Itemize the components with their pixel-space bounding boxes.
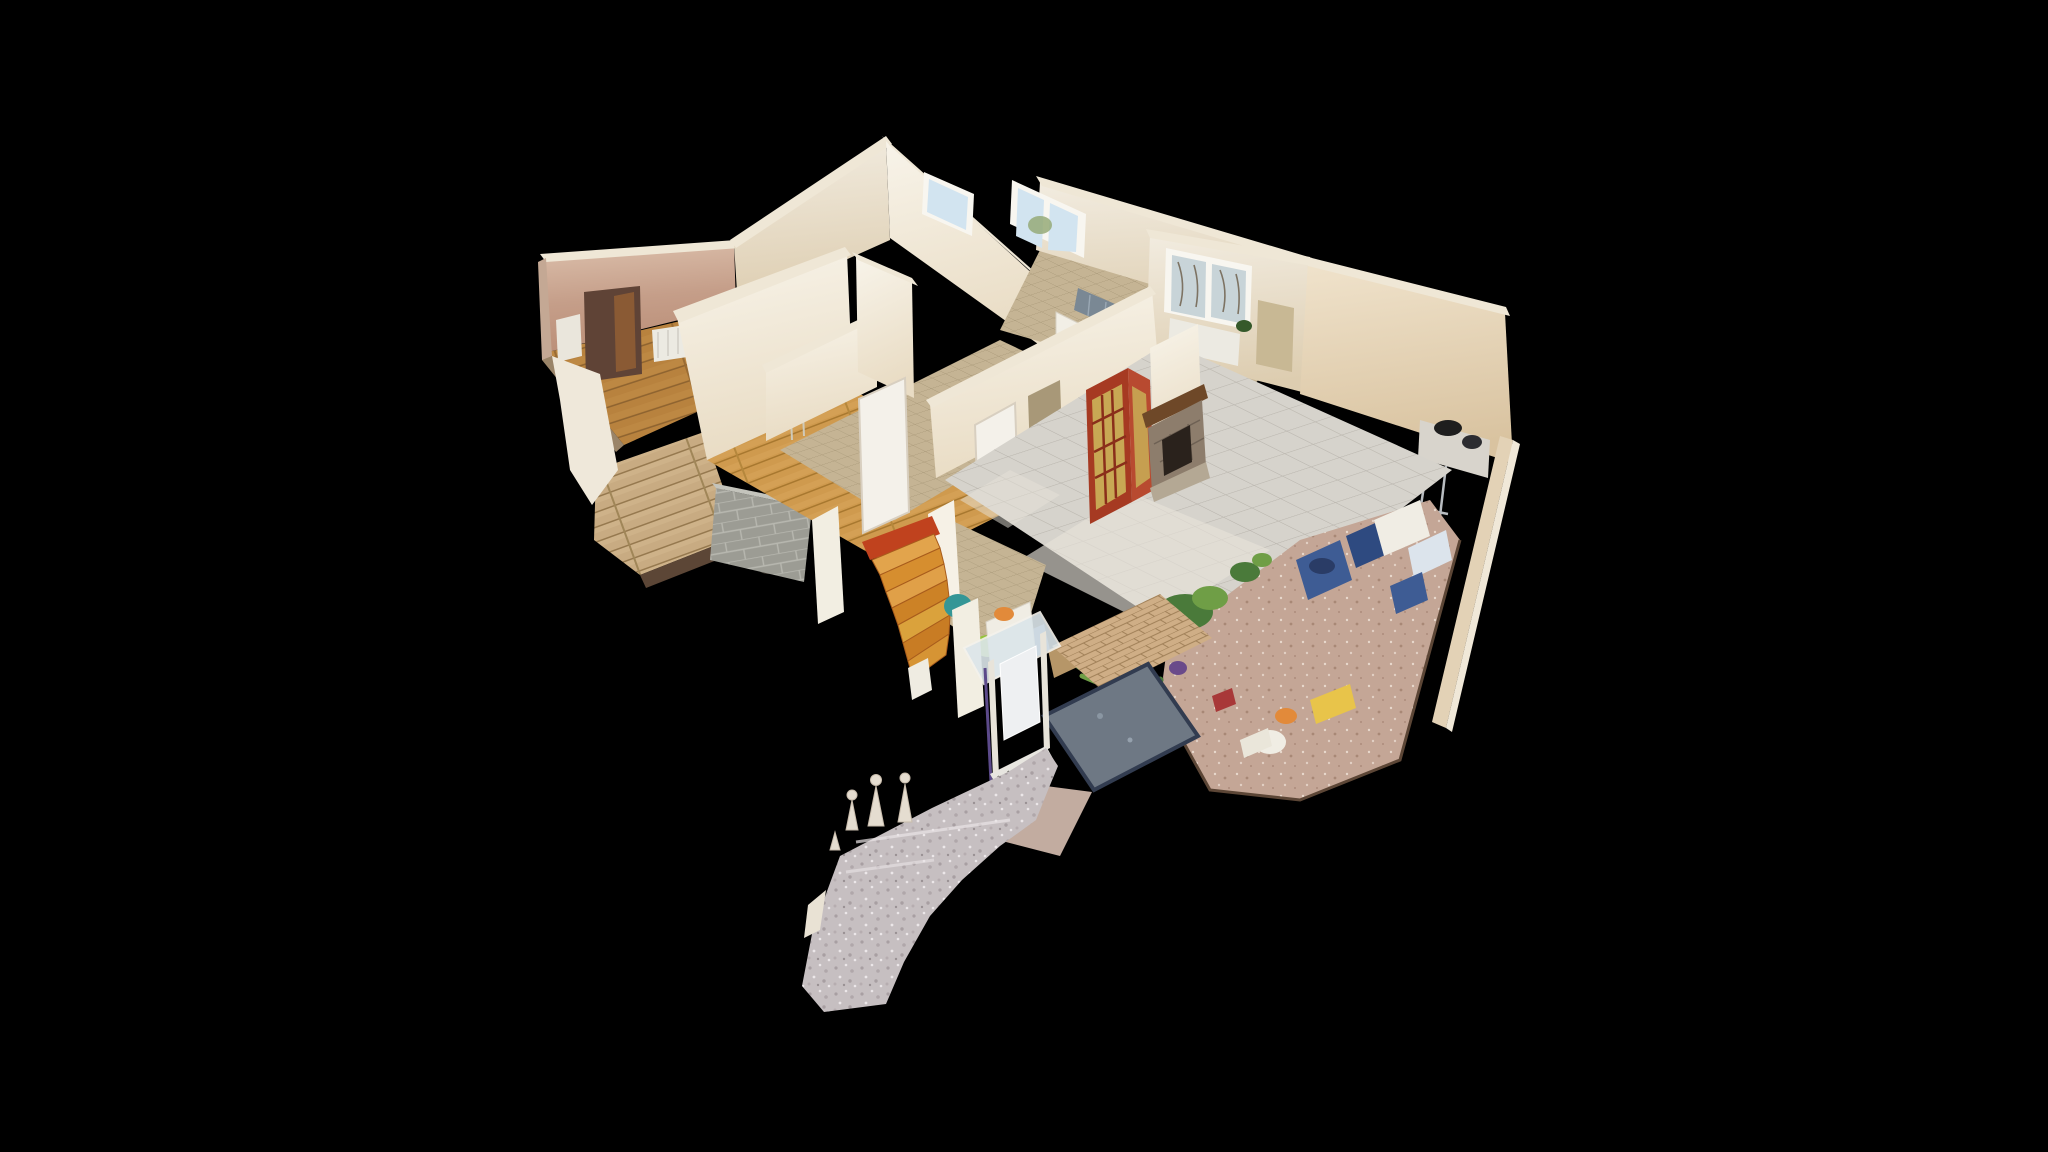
window-tree-foliage [1028,216,1052,234]
lace-window-glass-left [1171,255,1206,318]
black-desk-items [1434,420,1462,436]
viewer-stage: drag to orbit model [0,0,2048,1152]
orange-on-machine [994,607,1014,621]
sill-plant [1236,320,1252,332]
plant-small-light [1252,553,1272,567]
gnome-head [871,775,882,786]
serving-hatch-opening [1256,300,1294,372]
black-bag [1462,435,1482,449]
orange-item [1275,708,1297,724]
gnome-head [900,773,910,783]
white-appliance [556,314,582,362]
hall-white-door [859,378,909,533]
gnome-head [847,790,857,800]
purple-item [1169,661,1187,675]
dollhouse-3d-canvas[interactable] [0,0,2048,1152]
blue-chair-seat [1309,558,1335,574]
hatch-speckle [1128,738,1133,743]
lace-window-glass-right [1211,264,1246,324]
plant-mass-light [1192,586,1228,610]
red-door-amber-glass [1092,384,1126,510]
pink-room-open-door [614,292,636,372]
hatch-speckle [1097,713,1103,719]
